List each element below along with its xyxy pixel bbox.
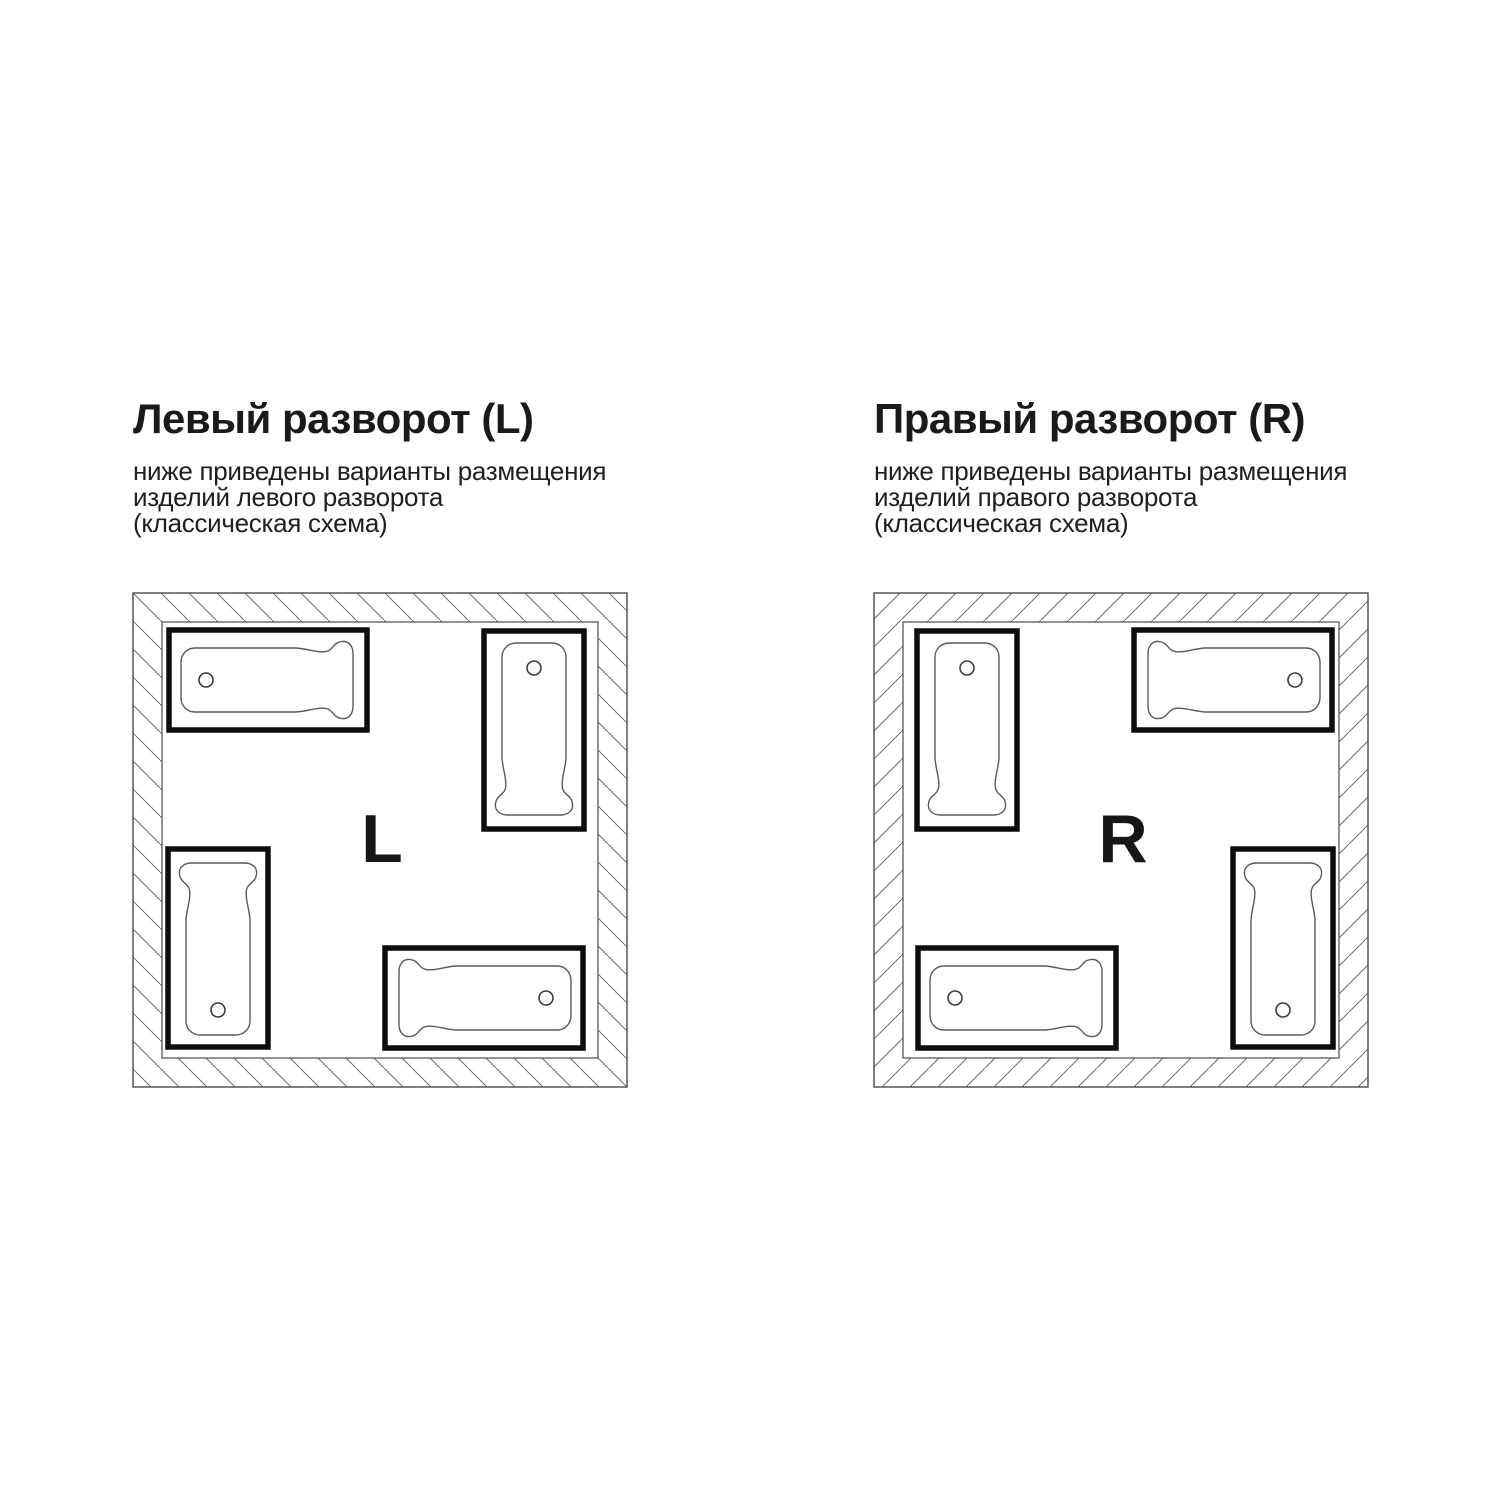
panel-left-orientation: Левый разворот (L) ниже приведены вариан… — [132, 395, 652, 1115]
orientation-letter: L — [361, 801, 403, 877]
panel-title: Левый разворот (L) — [133, 395, 533, 443]
bathtub-top-right-vertical-drain-top — [484, 631, 584, 829]
panel-title: Правый разворот (R) — [874, 395, 1305, 443]
bathtub-bottom-left-vertical-drain-bottom — [168, 849, 268, 1047]
bathtub-top-right-horizontal-drain-right — [1134, 630, 1332, 730]
page: Левый разворот (L) ниже приведены вариан… — [0, 0, 1500, 1500]
bathtub-bottom-left-horizontal-drain-left — [918, 948, 1116, 1048]
floor-plan-right: R — [873, 592, 1369, 1088]
panel-right-orientation: Правый разворот (R) ниже приведены вариа… — [873, 395, 1393, 1115]
orientation-letter: R — [1098, 801, 1147, 877]
description-line: (классическая схема) — [133, 508, 387, 538]
description-line: (классическая схема) — [874, 508, 1128, 538]
bathtub-top-left-vertical-drain-top — [917, 631, 1017, 829]
panel-description: ниже приведены варианты размещения издел… — [133, 458, 606, 536]
panel-description: ниже приведены варианты размещения издел… — [874, 458, 1347, 536]
bathtub-bottom-right-vertical-drain-bottom — [1233, 849, 1333, 1047]
bathtub-top-left-horizontal-drain-left — [169, 630, 367, 730]
bathtub-bottom-right-horizontal-drain-right — [385, 948, 583, 1048]
floor-plan-left: L — [132, 592, 628, 1088]
